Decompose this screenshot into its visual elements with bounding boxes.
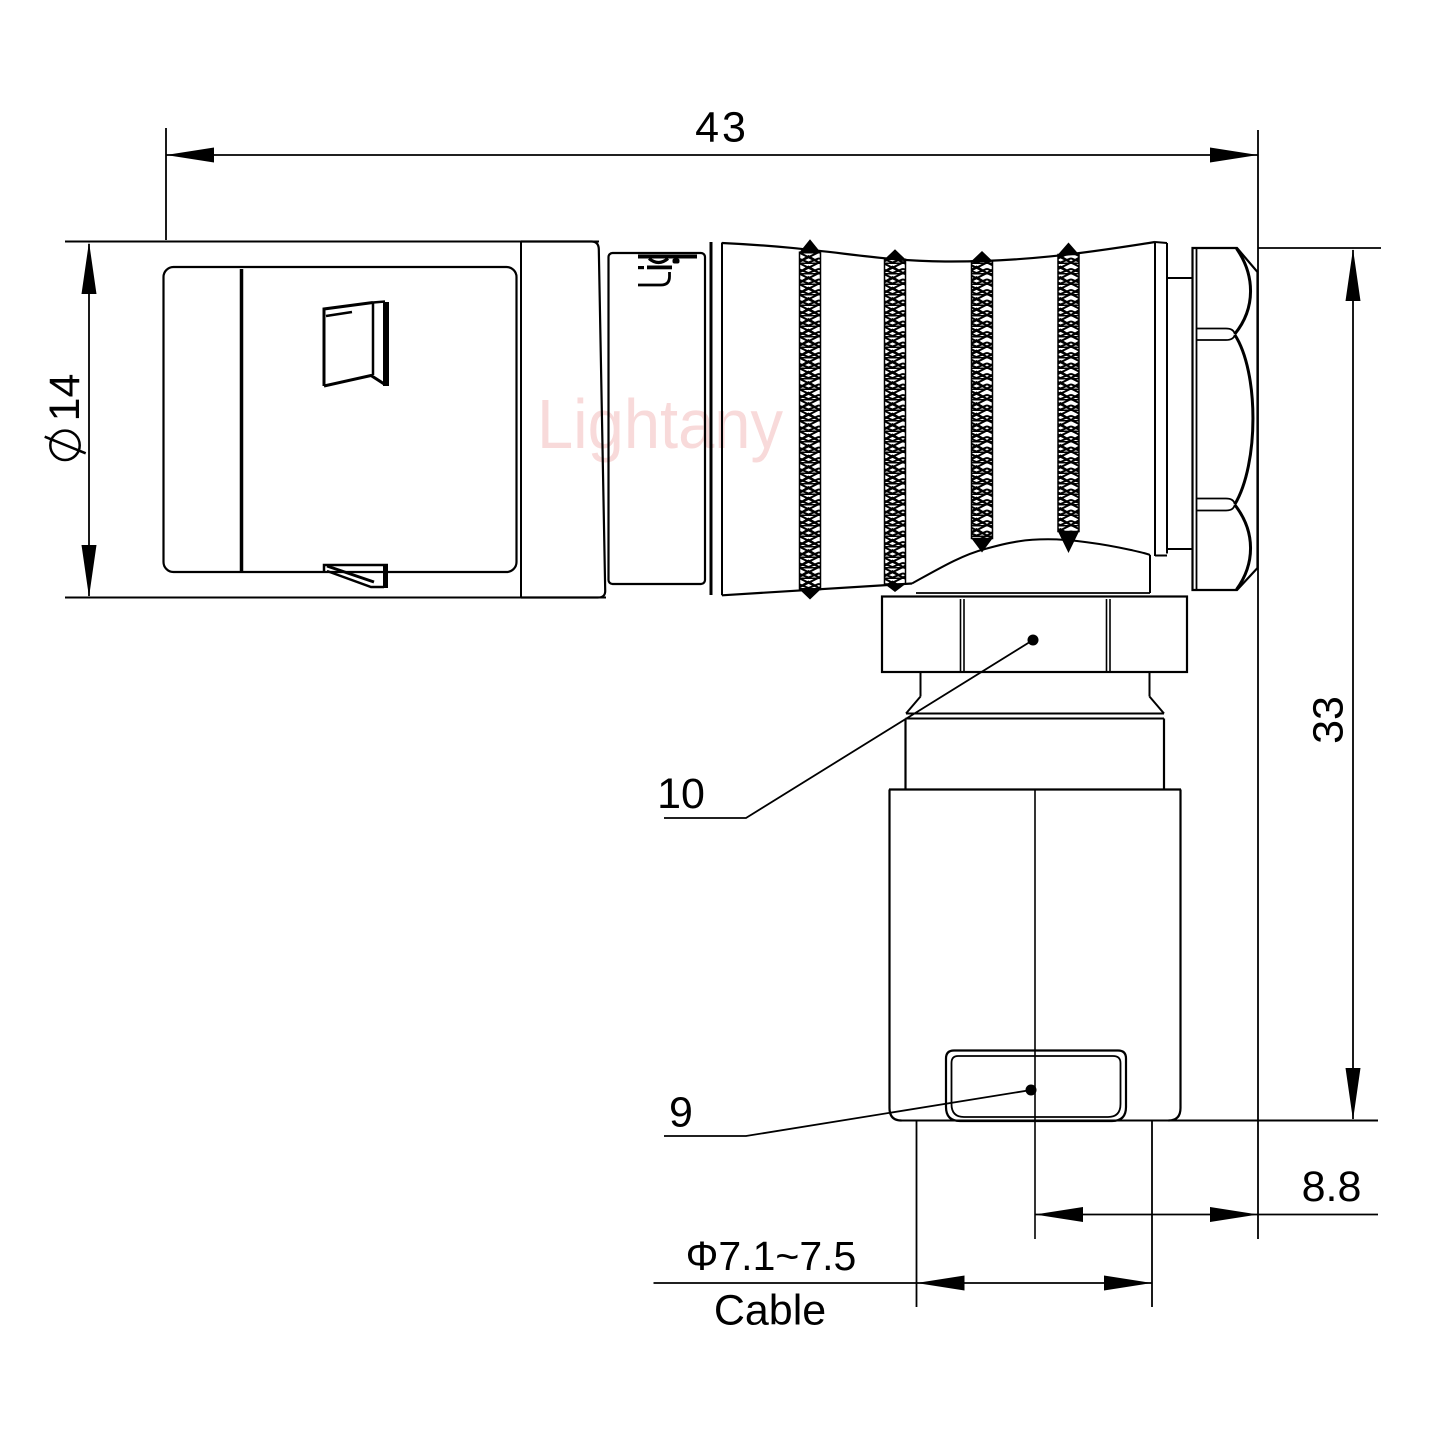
svg-text:Cable: Cable — [714, 1287, 826, 1335]
svg-text:8.8: 8.8 — [1302, 1163, 1362, 1211]
svg-text:Lightany: Lightany — [537, 386, 783, 464]
svg-text:9: 9 — [669, 1089, 693, 1137]
svg-text:10: 10 — [657, 770, 705, 818]
svg-text:14: 14 — [41, 374, 89, 422]
svg-text:43: 43 — [695, 104, 749, 152]
svg-text:Φ7.1~7.5: Φ7.1~7.5 — [686, 1233, 857, 1279]
svg-text:33: 33 — [1305, 696, 1353, 744]
